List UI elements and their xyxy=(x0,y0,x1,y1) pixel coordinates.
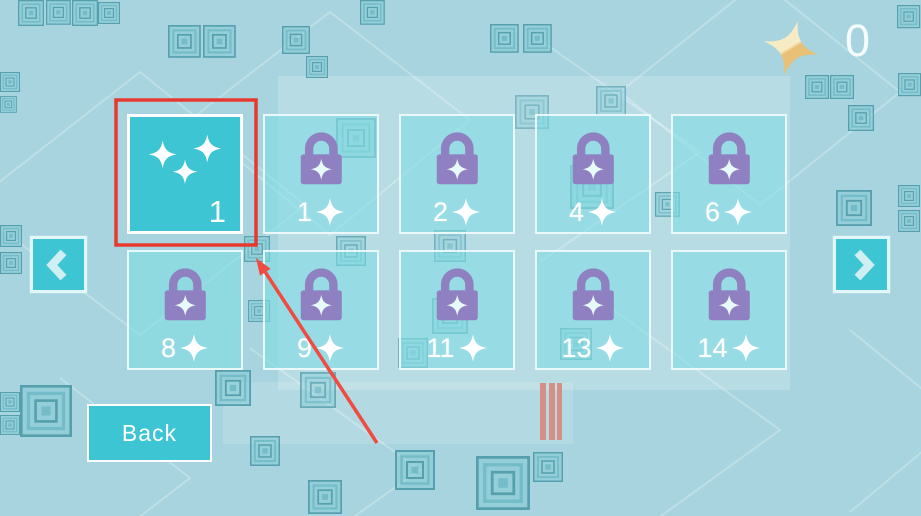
star-icon xyxy=(731,333,761,363)
lock-icon xyxy=(161,267,210,323)
level-grid: 1 1 2 4 6 8 9 11 xyxy=(127,114,787,370)
star-cost: 6 xyxy=(705,199,720,226)
next-page-button[interactable] xyxy=(833,236,890,293)
star-icon xyxy=(315,197,345,227)
star-cost: 14 xyxy=(697,335,727,362)
lock-icon xyxy=(297,267,346,323)
star-cost: 11 xyxy=(426,335,454,362)
star-cost: 8 xyxy=(161,335,176,362)
level-tile-locked-5[interactable]: 6 xyxy=(671,114,787,234)
level-tile-locked-10[interactable]: 14 xyxy=(671,250,787,370)
star-icon xyxy=(458,333,488,363)
star-icon xyxy=(179,333,209,363)
lock-icon xyxy=(569,267,618,323)
background-panel xyxy=(223,382,573,444)
level-tile-locked-8[interactable]: 11 xyxy=(399,250,515,370)
level-tile-locked-7[interactable]: 9 xyxy=(263,250,379,370)
chevron-right-icon xyxy=(844,247,880,283)
level-tile-locked-4[interactable]: 4 xyxy=(535,114,651,234)
star-icon xyxy=(315,333,345,363)
three-stars-icon xyxy=(141,133,229,195)
background-red-stripes xyxy=(540,383,562,440)
star-icon xyxy=(587,197,617,227)
prev-page-button[interactable] xyxy=(30,236,87,293)
star-icon xyxy=(723,197,753,227)
lock-icon xyxy=(433,267,482,323)
lock-icon xyxy=(705,131,754,187)
back-button[interactable]: Back xyxy=(87,404,212,462)
level-tile-locked-6[interactable]: 8 xyxy=(127,250,243,370)
level-number: 1 xyxy=(209,196,226,227)
star-cost: 1 xyxy=(297,199,312,226)
star-cost: 9 xyxy=(297,335,312,362)
lock-icon xyxy=(569,131,618,187)
star-currency-icon xyxy=(761,18,821,78)
lock-icon xyxy=(433,131,482,187)
star-cost: 13 xyxy=(561,335,591,362)
level-tile-locked-3[interactable]: 2 xyxy=(399,114,515,234)
chevron-left-icon xyxy=(41,247,77,283)
star-cost: 2 xyxy=(433,199,448,226)
level-tile-locked-9[interactable]: 13 xyxy=(535,250,651,370)
level-select-screen: 0 1 1 2 4 6 8 xyxy=(0,0,921,516)
level-tile-1[interactable]: 1 xyxy=(127,114,243,234)
level-tile-locked-2[interactable]: 1 xyxy=(263,114,379,234)
star-cost: 4 xyxy=(569,199,584,226)
back-button-label: Back xyxy=(122,420,177,447)
star-icon xyxy=(595,333,625,363)
star-icon xyxy=(451,197,481,227)
star-count: 0 xyxy=(845,16,905,66)
lock-icon xyxy=(705,267,754,323)
lock-icon xyxy=(297,131,346,187)
